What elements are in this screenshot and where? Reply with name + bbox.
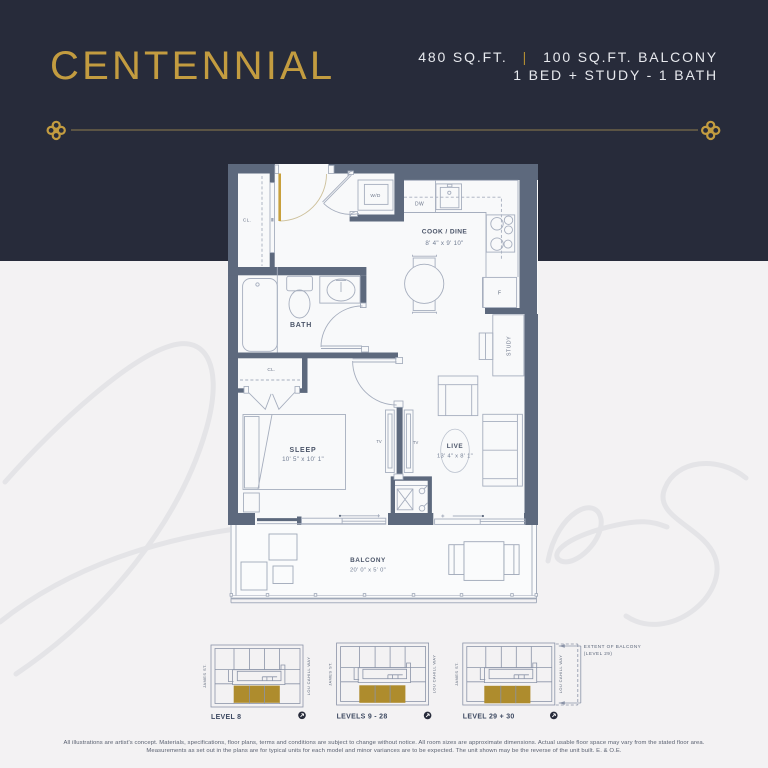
svg-text:COOK / DINE: COOK / DINE xyxy=(422,229,468,236)
svg-text:STUDY: STUDY xyxy=(507,336,513,356)
svg-text:10' 5" x 10' 1": 10' 5" x 10' 1" xyxy=(282,456,324,463)
svg-text:LOU CAHILL WAY: LOU CAHILL WAY xyxy=(432,655,437,694)
svg-text:CL.: CL. xyxy=(243,218,251,224)
svg-text:CL.: CL. xyxy=(267,367,275,373)
svg-text:LEVEL 29 + 30: LEVEL 29 + 30 xyxy=(463,714,515,721)
svg-text:LOU CAHILL WAY: LOU CAHILL WAY xyxy=(306,657,311,696)
svg-text:SLEEP: SLEEP xyxy=(290,447,317,454)
svg-text:JAMES ST.: JAMES ST. xyxy=(202,664,207,688)
svg-text:13' 4" x 8' 1": 13' 4" x 8' 1" xyxy=(437,454,473,460)
svg-text:LEVEL 8: LEVEL 8 xyxy=(211,714,241,721)
svg-text:LOU CAHILL WAY: LOU CAHILL WAY xyxy=(558,655,563,694)
svg-text:F: F xyxy=(498,291,501,297)
svg-text:LEVELS 9 - 28: LEVELS 9 - 28 xyxy=(337,714,388,721)
svg-text:20' 0" x 5' 0": 20' 0" x 5' 0" xyxy=(350,568,386,574)
svg-text:W/D: W/D xyxy=(370,193,380,199)
svg-text:TV: TV xyxy=(413,440,419,445)
svg-text:TV: TV xyxy=(376,439,382,444)
svg-text:EXTENT OF BALCONY: EXTENT OF BALCONY xyxy=(584,644,641,649)
svg-text:LIVE: LIVE xyxy=(447,443,464,450)
svg-text:JAMES ST.: JAMES ST. xyxy=(454,662,459,686)
svg-text:BATH: BATH xyxy=(290,322,312,329)
svg-text:(LEVEL 29): (LEVEL 29) xyxy=(584,651,613,656)
svg-text:JAMES ST.: JAMES ST. xyxy=(328,662,333,686)
svg-text:DW: DW xyxy=(415,202,424,208)
svg-text:BALCONY: BALCONY xyxy=(350,557,386,564)
svg-text:8' 4" x 9' 10": 8' 4" x 9' 10" xyxy=(425,240,463,247)
